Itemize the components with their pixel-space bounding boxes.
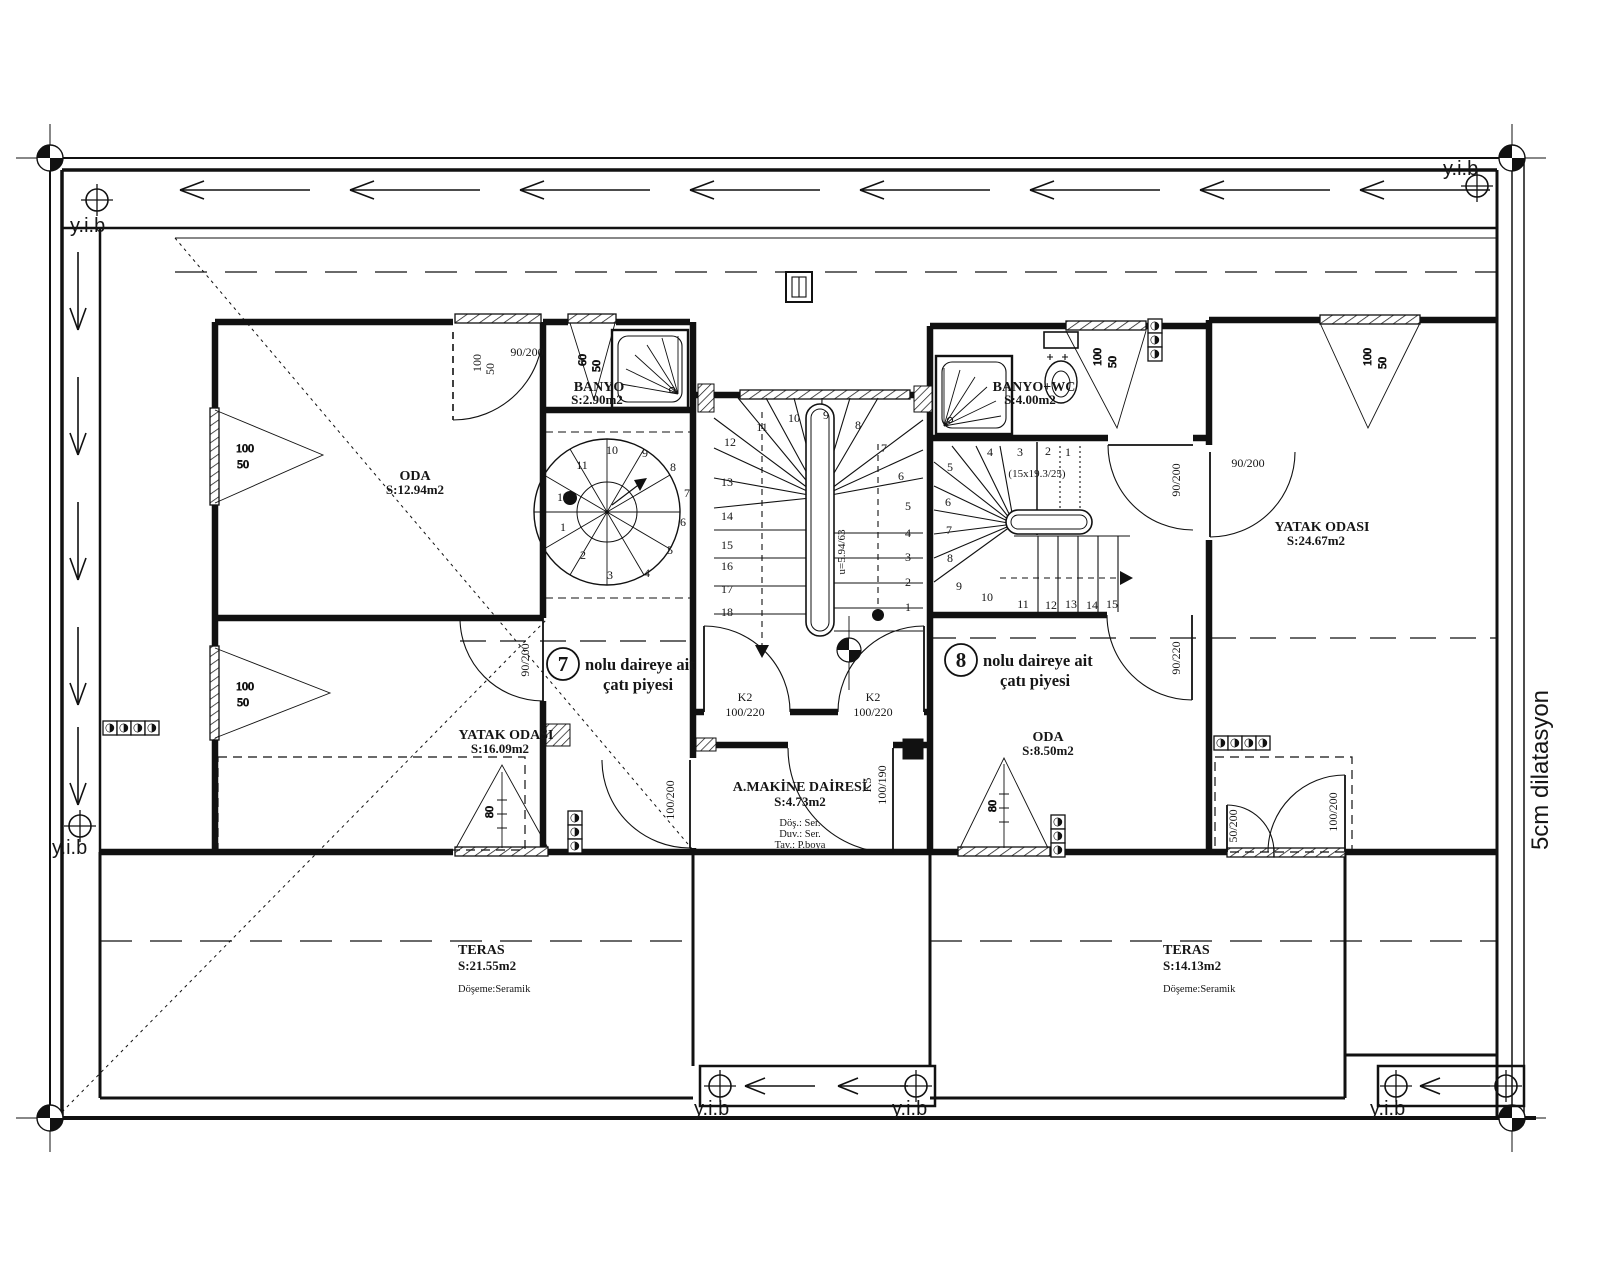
area-oda8: S:8.50m2 [1022, 743, 1074, 758]
yib-label-top-right: y.i.b [1443, 158, 1478, 180]
label-teras7: TERAS [458, 943, 505, 958]
win-dim: 60 [575, 354, 589, 366]
svg-text:9: 9 [823, 408, 829, 422]
door-label-yatak7: 90/200 [518, 643, 532, 676]
svg-text:13: 13 [1065, 597, 1077, 611]
door-label-closet-big: 100/200 [1326, 792, 1340, 831]
svg-text:18: 18 [721, 605, 733, 619]
side-stair-note: (15x19.3/25) [1008, 468, 1065, 480]
svg-text:8: 8 [855, 418, 861, 432]
window-oda8-bottom [958, 847, 1050, 856]
window-stairhall [740, 390, 910, 399]
svg-text:14: 14 [1086, 598, 1098, 612]
area-teras7: S:21.55m2 [458, 958, 516, 973]
yib-label-bottom-2: y.i.b [892, 1098, 927, 1120]
win-dim: 50 [237, 695, 249, 709]
door-size-k2-right: 100/220 [853, 705, 892, 719]
svg-text:10: 10 [606, 443, 618, 457]
svg-text:8: 8 [670, 460, 676, 474]
door-label-k2-left: K2 [738, 690, 753, 704]
svg-text:2: 2 [1045, 444, 1051, 458]
yib-label-left: y.i.b [52, 837, 87, 859]
svg-text:4: 4 [644, 566, 650, 580]
window-yatak7-left [210, 646, 219, 740]
svg-text:5: 5 [667, 543, 673, 557]
area-makine: S:4.73m2 [774, 794, 826, 809]
area-yatak7: S:16.09m2 [471, 741, 529, 756]
floor-plan-drawing: y.i.b y.i.b y.i.b y.i.b y.i.b y.i.b 5cm … [0, 0, 1600, 1280]
apt8-number: 8 [956, 648, 967, 672]
win-dim: 100 [236, 441, 254, 455]
svg-text:4: 4 [905, 526, 911, 540]
win-dim: 50 [1105, 356, 1119, 368]
window-oda7-left [210, 408, 219, 505]
svg-text:10: 10 [981, 590, 993, 604]
door-label-yatak8: 90/200 [1231, 456, 1264, 470]
svg-text:2: 2 [905, 575, 911, 589]
svg-text:11: 11 [1017, 597, 1029, 611]
yib-label-bottom-3: y.i.b [1370, 1098, 1405, 1120]
floor-teras7: Döşeme:Seramik [458, 984, 531, 995]
label-makine: A.MAKİNE DAİRESİ [733, 778, 868, 795]
area-teras8: S:14.13m2 [1163, 958, 1221, 973]
svg-text:11: 11 [576, 458, 588, 472]
door-label-teras7: 100/200 [663, 780, 677, 819]
win-dim: 50 [1375, 357, 1389, 369]
win-dim: 80 [985, 800, 999, 812]
svg-text:3: 3 [1017, 445, 1023, 459]
svg-text:7: 7 [881, 441, 887, 455]
door-label-oda8: 90/220 [1169, 641, 1183, 674]
svg-text:10: 10 [788, 411, 800, 425]
svg-text:6: 6 [680, 515, 686, 529]
door-label-k2-right: K2 [866, 690, 881, 704]
window-banyo8 [1066, 321, 1146, 330]
svg-text:5: 5 [947, 460, 953, 474]
apt7-number: 7 [558, 652, 569, 676]
svg-text:1: 1 [560, 520, 566, 534]
door-label-oda7: 90/200 [510, 345, 543, 359]
svg-text:12: 12 [1045, 598, 1057, 612]
svg-text:11: 11 [756, 420, 768, 434]
win-dim: 100 [236, 679, 254, 693]
floor-plan-page: y.i.b y.i.b y.i.b y.i.b y.i.b y.i.b 5cm … [0, 0, 1600, 1280]
svg-text:16: 16 [721, 559, 733, 573]
svg-text:4: 4 [987, 445, 993, 459]
svg-text:9: 9 [956, 579, 962, 593]
svg-text:14: 14 [721, 509, 733, 523]
svg-text:7: 7 [684, 486, 690, 500]
window-top-1 [455, 314, 541, 323]
area-banyo8: S:4.00m2 [1004, 392, 1056, 407]
apt8-line1: nolu daireye ait [983, 651, 1093, 670]
svg-text:3: 3 [905, 550, 911, 564]
door-label-closet-small: 50/200 [1226, 809, 1240, 842]
svg-text:2: 2 [580, 548, 586, 562]
window-yatak8 [1320, 315, 1420, 324]
door-label-hall8: 90/200 [1169, 463, 1183, 496]
door-size-k5: 100/190 [875, 765, 889, 804]
svg-text:7: 7 [946, 523, 952, 537]
svg-text:6: 6 [945, 495, 951, 509]
dilatation-label: 5cm dilatasyon [1527, 690, 1554, 850]
win-dim: 100 [1090, 348, 1104, 366]
yib-label-top-left: y.i.b [70, 215, 105, 237]
makine-ceiling: Tav.: P.boya [775, 840, 826, 851]
svg-text:17: 17 [721, 582, 733, 596]
win-dim: 50 [589, 360, 603, 372]
svg-text:8: 8 [947, 551, 953, 565]
area-oda7: S:12.94m2 [386, 482, 444, 497]
walkline-start-dot [872, 609, 884, 621]
svg-text:1: 1 [1065, 445, 1071, 459]
svg-text:13: 13 [721, 475, 733, 489]
label-teras8: TERAS [1163, 943, 1210, 958]
floor-teras8: Döşeme:Seramik [1163, 984, 1236, 995]
apt7-line2: çatı piyesi [603, 675, 674, 694]
apt7-line1: nolu daireye ait [585, 655, 695, 674]
makine-floor: Döş.: Ser. [779, 818, 820, 829]
win-dim: 50 [237, 457, 249, 471]
door-dim: 50 [483, 363, 497, 375]
window-banyo7 [568, 314, 616, 323]
paper-background [0, 0, 1600, 1280]
win-dim: 80 [482, 806, 496, 818]
svg-text:1: 1 [905, 600, 911, 614]
svg-text:6: 6 [898, 469, 904, 483]
svg-text:9: 9 [642, 446, 648, 460]
door-size-k2-left: 100/220 [725, 705, 764, 719]
main-stair-note: u=5.94/63 [836, 529, 848, 575]
svg-text:12: 12 [724, 435, 736, 449]
win-dim: 100 [1360, 348, 1374, 366]
area-banyo7: S:2.90m2 [571, 392, 623, 407]
svg-text:3: 3 [607, 568, 613, 582]
apt8-line2: çatı piyesi [1000, 671, 1071, 690]
svg-text:5: 5 [905, 499, 911, 513]
window-yatak7-bottom [455, 847, 548, 856]
svg-text:15: 15 [721, 538, 733, 552]
area-yatak8: S:24.67m2 [1287, 533, 1345, 548]
door-dim: 100 [470, 354, 484, 372]
svg-text:15: 15 [1106, 597, 1118, 611]
makine-wall: Duv.: Ser. [779, 829, 821, 840]
svg-text:12: 12 [557, 490, 569, 504]
